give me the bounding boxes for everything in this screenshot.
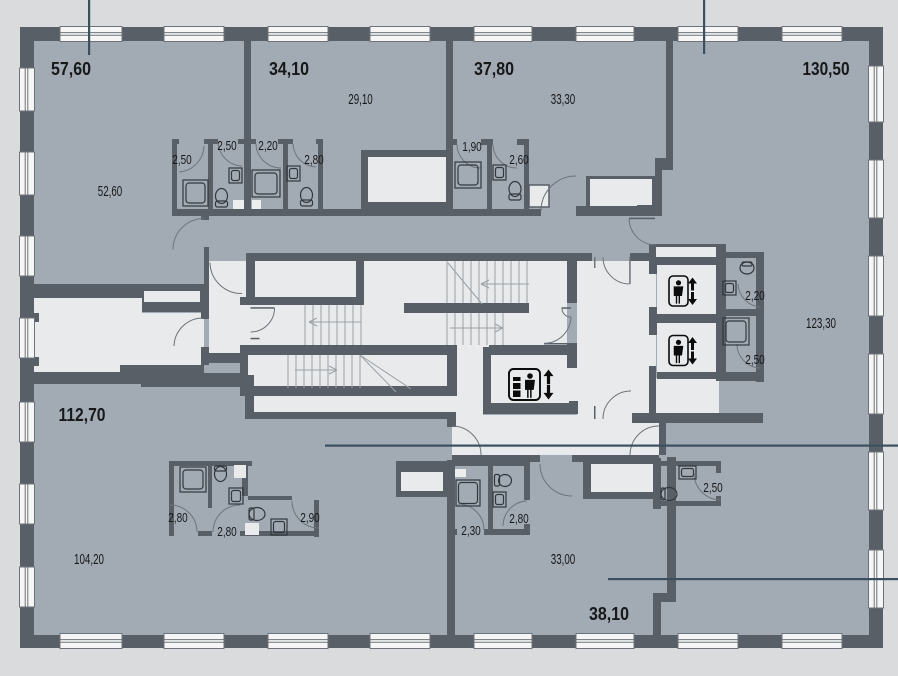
svg-text:38,10: 38,10 bbox=[589, 603, 629, 624]
svg-text:130,50: 130,50 bbox=[803, 58, 850, 79]
svg-text:1,90: 1,90 bbox=[462, 139, 482, 154]
svg-text:2,80: 2,80 bbox=[304, 152, 324, 167]
svg-text:104,20: 104,20 bbox=[74, 552, 104, 568]
svg-text:2,20: 2,20 bbox=[258, 138, 278, 153]
svg-text:2,80: 2,80 bbox=[509, 511, 529, 526]
svg-text:2,50: 2,50 bbox=[172, 152, 192, 167]
svg-text:33,30: 33,30 bbox=[551, 92, 576, 108]
svg-text:123,30: 123,30 bbox=[806, 316, 836, 332]
svg-text:2,30: 2,30 bbox=[461, 523, 481, 538]
svg-text:2,90: 2,90 bbox=[300, 510, 320, 525]
svg-text:33,00: 33,00 bbox=[551, 552, 576, 568]
svg-text:2,80: 2,80 bbox=[168, 510, 188, 525]
svg-text:2,50: 2,50 bbox=[745, 352, 765, 367]
svg-text:34,10: 34,10 bbox=[269, 58, 309, 79]
svg-text:2,60: 2,60 bbox=[509, 152, 529, 167]
svg-text:2,20: 2,20 bbox=[745, 288, 765, 303]
svg-text:112,70: 112,70 bbox=[59, 404, 106, 425]
svg-text:52,60: 52,60 bbox=[98, 184, 123, 200]
svg-text:37,80: 37,80 bbox=[474, 58, 514, 79]
svg-text:29,10: 29,10 bbox=[348, 92, 373, 108]
svg-text:2,50: 2,50 bbox=[217, 138, 237, 153]
svg-text:2,50: 2,50 bbox=[703, 480, 723, 495]
svg-text:2,80: 2,80 bbox=[217, 524, 237, 539]
svg-text:57,60: 57,60 bbox=[51, 58, 91, 79]
